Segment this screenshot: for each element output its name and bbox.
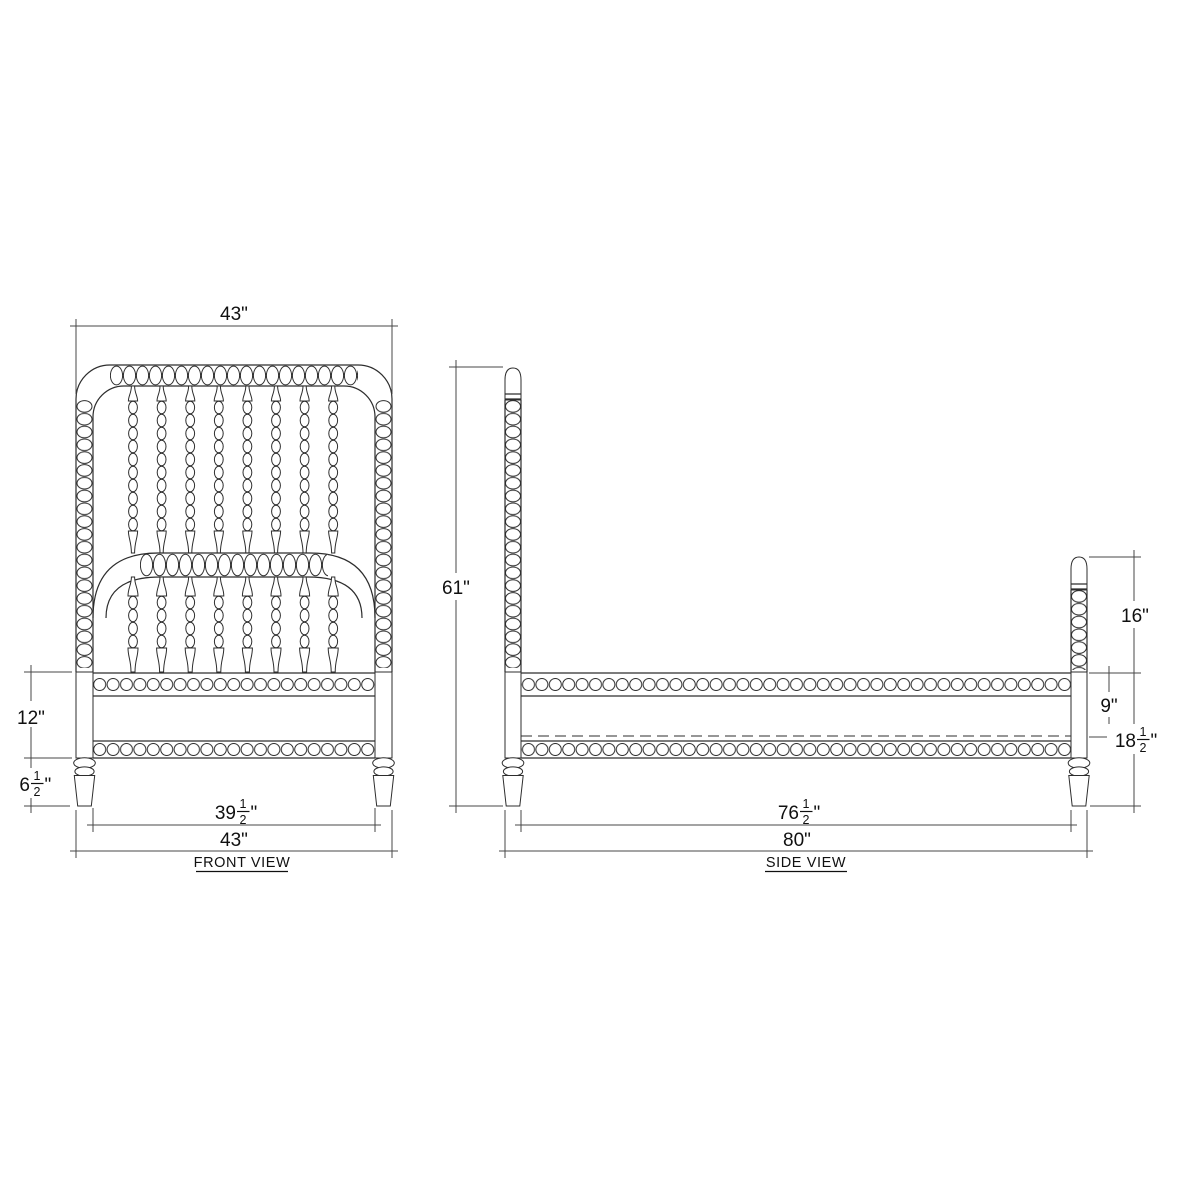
front-left-post-lower [76, 672, 93, 758]
side-length-label: 80" [783, 830, 811, 851]
front-top-bead-row [93, 678, 375, 691]
side-top-bead-row [521, 678, 1071, 691]
side-bottom-bead-row [521, 743, 1071, 756]
headboard-post-finial [505, 368, 521, 400]
front-right-post-lower [375, 672, 392, 758]
front-width-bottom-label: 43" [220, 830, 248, 851]
svg-text:2: 2 [803, 813, 810, 827]
upper-spindles [128, 386, 337, 553]
svg-text:39: 39 [215, 803, 236, 824]
headboard-top-spool-bar [110, 366, 358, 386]
svg-text:2: 2 [240, 813, 247, 827]
side-inner-length-label: 76 1 2 " [778, 797, 820, 827]
drawing-canvas: 43" 12" 6 1 2 " 39 1 2 " 43" FRONT VIEW … [0, 0, 1200, 1200]
side-footboard-post-lower [1071, 672, 1087, 758]
front-view [74, 365, 395, 806]
front-view-title: FRONT VIEW [194, 855, 291, 871]
mid-rail-inner-outline [106, 577, 362, 618]
side-headboard-foot [502, 758, 524, 806]
svg-text:1: 1 [1140, 725, 1147, 739]
lower-spindles [128, 577, 338, 672]
front-width-top-label: 43" [220, 304, 248, 325]
front-rail-height-label: 12" [17, 708, 45, 729]
svg-text:18: 18 [1115, 731, 1136, 752]
svg-text:": " [814, 803, 821, 824]
svg-text:1: 1 [34, 769, 41, 783]
svg-text:": " [251, 803, 258, 824]
headboard-post-beads [505, 400, 521, 668]
svg-text:1: 1 [803, 797, 810, 811]
front-right-foot [373, 758, 395, 806]
svg-text:": " [1151, 731, 1158, 752]
svg-text:76: 76 [778, 803, 799, 824]
front-bottom-bead-row [93, 743, 375, 756]
side-view-title: SIDE VIEW [766, 855, 846, 871]
side-height-label: 61" [442, 578, 470, 599]
side-view [502, 368, 1090, 806]
mid-rail-spool-bar [140, 554, 328, 577]
side-footboard-foot [1068, 758, 1090, 806]
footboard-post-finial [1071, 557, 1087, 590]
front-inner-width-label: 39 1 2 " [215, 797, 257, 827]
side-post-above-rail-label: 16" [1121, 606, 1149, 627]
svg-text:": " [45, 775, 52, 796]
bed-technical-drawing: 43" 12" 6 1 2 " 39 1 2 " 43" FRONT VIEW … [0, 0, 1200, 1200]
svg-text:1: 1 [240, 797, 247, 811]
front-left-post-beads [77, 400, 93, 668]
svg-text:6: 6 [19, 775, 30, 796]
front-left-foot [74, 758, 96, 806]
svg-text:2: 2 [1140, 741, 1147, 755]
side-headboard-post-lower [505, 672, 521, 758]
front-right-post-beads [376, 400, 392, 668]
footboard-post-beads [1071, 590, 1087, 670]
side-rail-to-support-label: 9" [1100, 696, 1117, 717]
headboard-outer-outline [76, 365, 392, 672]
svg-text:2: 2 [34, 785, 41, 799]
